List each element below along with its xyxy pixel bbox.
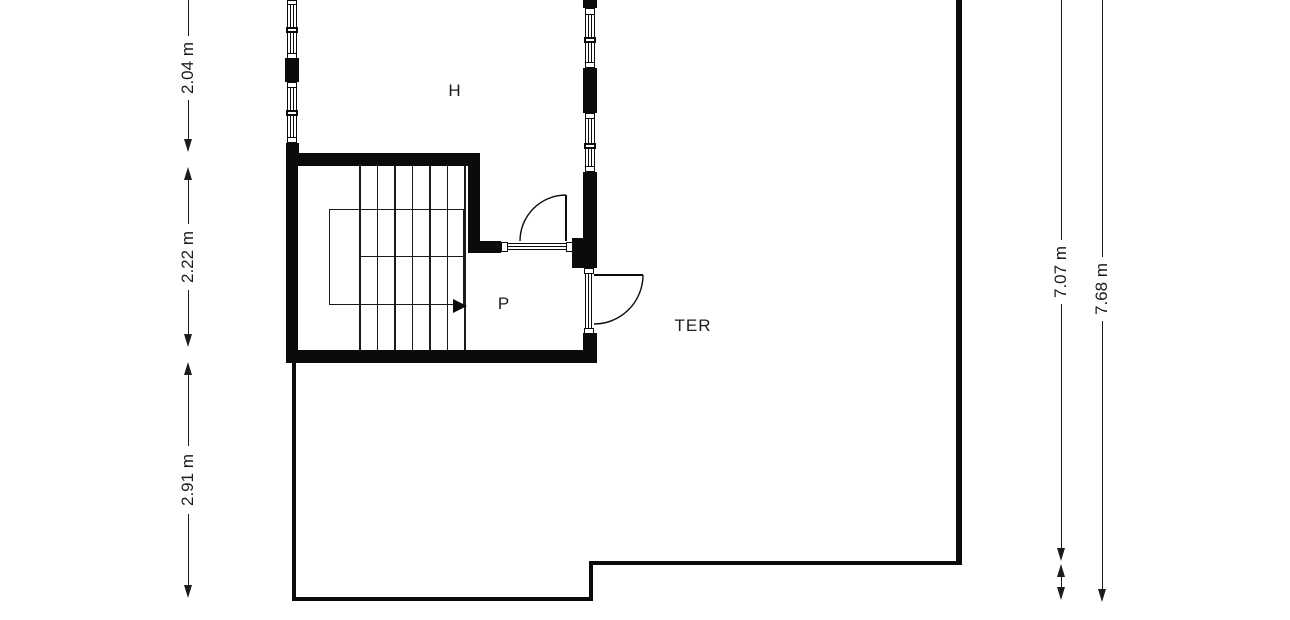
dimension-line bbox=[188, 178, 189, 224]
room-label-p: P bbox=[498, 294, 510, 314]
dimension-line bbox=[1102, 0, 1103, 257]
dimension-arrow-down bbox=[184, 585, 192, 598]
dimension-line bbox=[188, 0, 189, 36]
dimension-line bbox=[1102, 321, 1103, 590]
floorplan-canvas: H P TER 2.04 m 2.22 m 2.91 m 7.07 m 7.68… bbox=[0, 0, 1290, 620]
dimension-line bbox=[1061, 304, 1062, 550]
dimension-label-2-22: 2.22 m bbox=[178, 231, 198, 283]
room-label-ter: TER bbox=[675, 316, 712, 336]
dimension-label-2-91: 2.91 m bbox=[178, 454, 198, 506]
dimension-line bbox=[188, 514, 189, 586]
dimension-line bbox=[188, 290, 189, 336]
dimension-arrow-down bbox=[1098, 589, 1106, 602]
dimension-arrow-down bbox=[184, 334, 192, 347]
door-arc-ter bbox=[594, 275, 643, 324]
dimension-label-2-04: 2.04 m bbox=[178, 42, 198, 94]
stair-direction-arrow bbox=[453, 299, 467, 313]
dimension-line bbox=[1061, 0, 1062, 240]
door-arc-p bbox=[520, 195, 566, 241]
dimension-arrow-down bbox=[1057, 587, 1065, 600]
dimension-label-7-68: 7.68 m bbox=[1092, 263, 1112, 315]
room-label-h: H bbox=[448, 81, 461, 101]
dimension-arrow-down bbox=[1057, 548, 1065, 561]
dimension-arrow-down bbox=[184, 139, 192, 152]
dimension-label-7-07: 7.07 m bbox=[1051, 246, 1071, 298]
dimension-line bbox=[188, 100, 189, 140]
dimension-line bbox=[188, 373, 189, 446]
